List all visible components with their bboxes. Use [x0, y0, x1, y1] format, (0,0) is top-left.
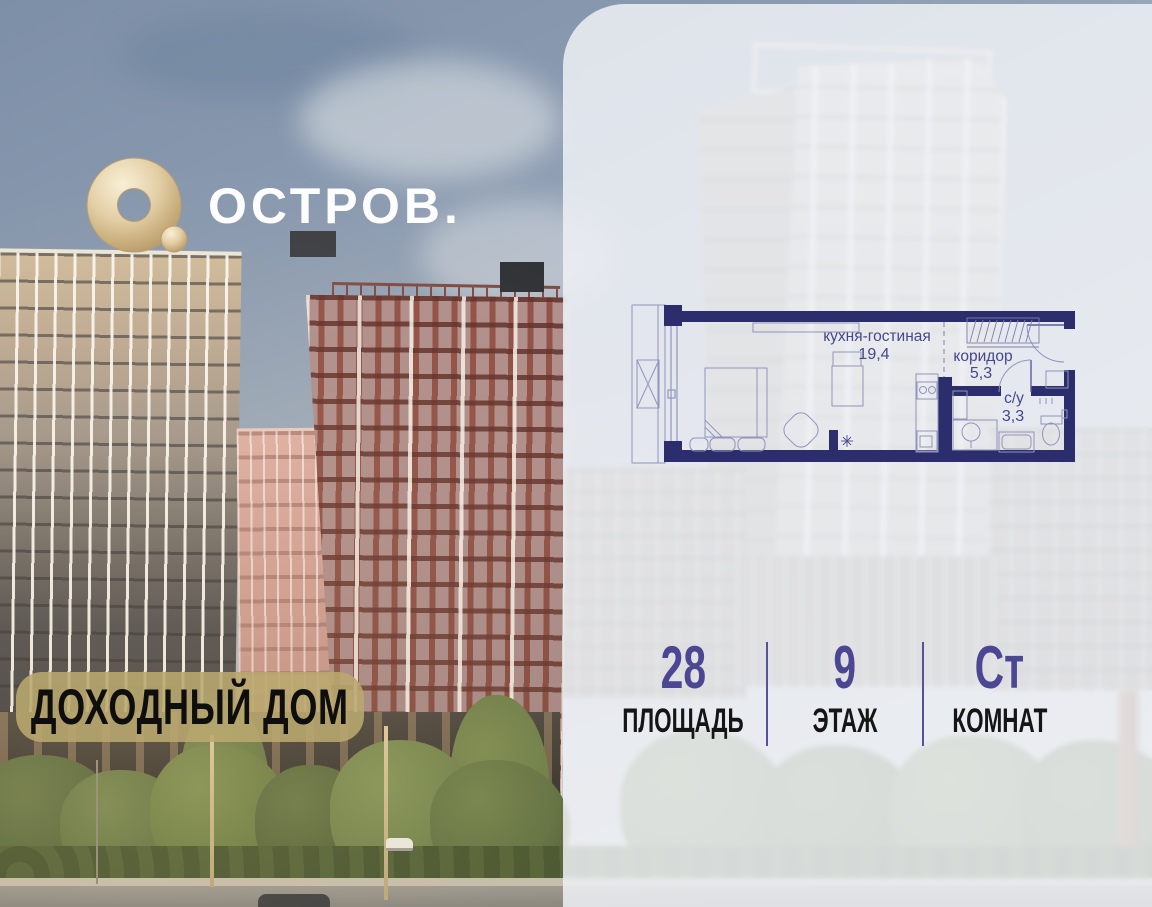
room-labels: кухня-гостиная 19,4 коридор 5,3 с/у 3,3 [823, 328, 1024, 425]
listing-card: ОСТРОВ. ДОХОДНЫЙ ДОМ [0, 0, 1152, 907]
stat-rooms-label: КОМНАТ [952, 704, 1047, 738]
appliance-symbol [841, 435, 853, 447]
stat-area: 28 ПЛОЩАДЬ [600, 642, 766, 746]
rental-house-badge: ДОХОДНЫЙ ДОМ [16, 672, 364, 742]
floor-plan-drawing: кухня-гостиная 19,4 коридор 5,3 с/у 3,3 [622, 291, 1080, 471]
apartment-stats: 28 ПЛОЩАДЬ 9 ЭТАЖ Ст КОМНАТ [600, 642, 1075, 746]
room-area: 19,4 [858, 346, 889, 363]
wardrobe [967, 318, 1039, 347]
stat-area-label: ПЛОЩАДЬ [622, 704, 743, 738]
stat-floor: 9 ЭТАЖ [766, 642, 922, 746]
stat-rooms: Ст КОМНАТ [922, 642, 1075, 746]
brand-name: ОСТРОВ. [208, 181, 462, 231]
gold-ring-logo-icon [86, 156, 194, 256]
window [668, 326, 677, 441]
badge-label: ДОХОДНЫЙ ДОМ [31, 678, 349, 736]
room-name: коридор [953, 348, 1012, 365]
stat-rooms-value: Ст [975, 644, 1024, 692]
room-name: кухня-гостиная [823, 328, 931, 345]
room-area: 5,3 [970, 365, 992, 382]
entrance-door [1027, 325, 1064, 362]
stat-floor-label: ЭТАЖ [813, 704, 878, 738]
stat-area-value: 28 [660, 644, 705, 692]
balcony-outline [632, 305, 665, 463]
room-name: с/у [1004, 390, 1024, 407]
room-area: 3,3 [1002, 408, 1024, 425]
stat-floor-value: 9 [834, 644, 857, 692]
brand-logo: ОСТРОВ. [86, 156, 462, 256]
